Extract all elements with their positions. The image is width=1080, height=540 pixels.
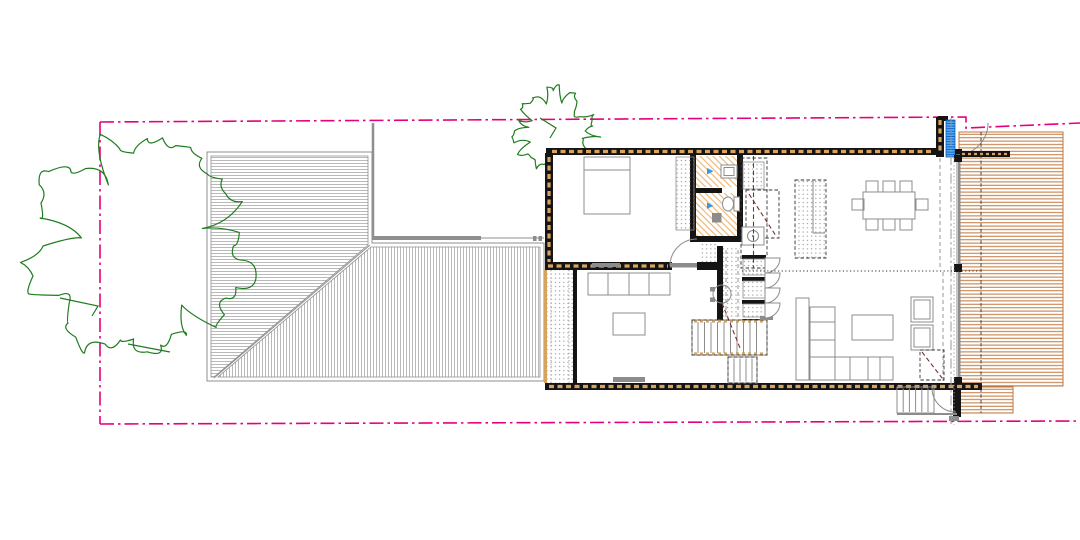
stairs-external [897,387,957,414]
floor-plan-svg [0,0,1080,540]
deck [958,132,1063,413]
carport-roof [207,152,544,381]
floor-plan-canvas [0,0,1080,540]
